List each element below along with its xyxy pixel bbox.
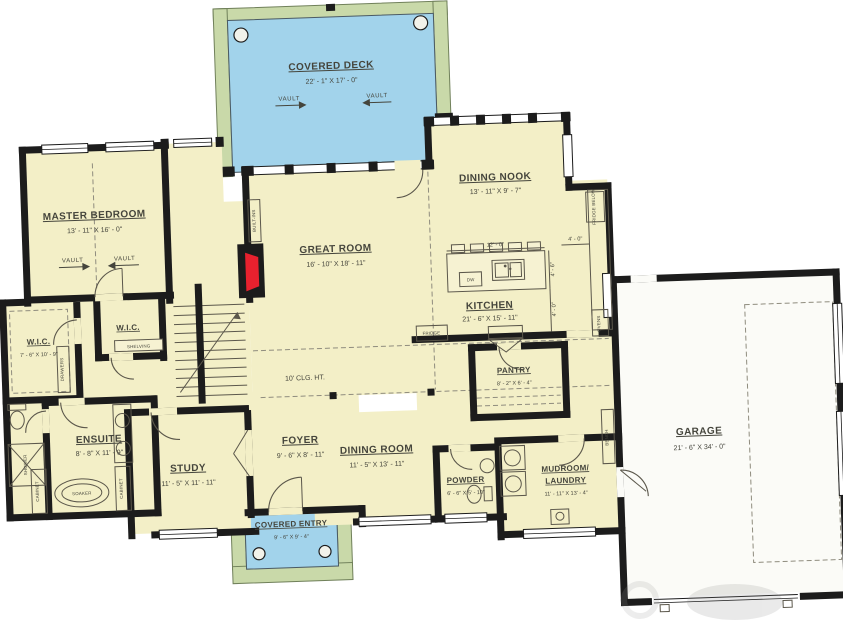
drawers-label: DRAWERS xyxy=(59,358,65,382)
island-width-dim: 4' - 6" xyxy=(550,262,556,276)
floor-plan-page: COVERED DECK 22' - 1" X 17' - 0" VAULT V… xyxy=(0,0,843,632)
built-ins-label: BUILT-INS xyxy=(251,209,257,232)
vault-label: VAULT xyxy=(114,256,136,263)
soaker-label: SOAKER xyxy=(72,491,92,497)
mudroom-label-1: MUDROOM/ xyxy=(541,463,589,474)
shelving-label: SHELVING xyxy=(127,343,151,349)
wic-secondary-label: W.I.C. xyxy=(116,323,140,333)
covered-entry-dims: 9' - 6" X 9' - 4" xyxy=(274,534,309,541)
kitchen-island xyxy=(447,251,546,292)
island-stool xyxy=(451,244,464,252)
entry-post xyxy=(319,545,331,557)
foyer-label: FOYER xyxy=(282,435,319,447)
ceiling-height-note: 10' CLG. HT. xyxy=(285,374,325,382)
ensuite-label: ENSUITE xyxy=(76,433,122,446)
cabinet-label: CABINET xyxy=(118,478,124,499)
dw-label: DW xyxy=(467,277,476,282)
vault-label: VAULT xyxy=(366,93,388,100)
entry-post xyxy=(253,548,265,560)
ovens-label: OVENS xyxy=(596,315,602,332)
pantry-label: PANTRY xyxy=(497,365,531,375)
vault-label: VAULT xyxy=(278,96,300,103)
island-clearance-dim: 4' - 0" xyxy=(551,302,557,316)
rear-hall-floor xyxy=(415,334,619,446)
island-clearance-dim2: 4' - 0" xyxy=(568,236,582,242)
fridge-label: FRIDGE xyxy=(422,330,440,336)
island-length-dim: 12' - 0" xyxy=(487,242,505,249)
island-stool xyxy=(508,242,521,250)
kitchen-label: KITCHEN xyxy=(466,300,514,313)
upper-hall-floor xyxy=(164,142,224,206)
cabinet-label: CABINET xyxy=(34,481,40,502)
mudroom-label-2: LAUNDRY xyxy=(545,475,587,485)
great-room-floor xyxy=(245,163,438,399)
garage-label: GARAGE xyxy=(676,426,723,439)
bench-label: BENCH xyxy=(604,429,610,446)
floor-plan-drawing: COVERED DECK 22' - 1" X 17' - 0" VAULT V… xyxy=(0,0,843,632)
garage-floor xyxy=(614,273,843,601)
pantry-dims: 8' - 2" X 6' - 4" xyxy=(497,380,532,387)
vault-label: VAULT xyxy=(62,258,84,265)
island-stool xyxy=(470,244,483,252)
island-stool xyxy=(527,242,540,250)
deck-post xyxy=(234,28,248,42)
fireplace xyxy=(245,252,260,292)
deck-post xyxy=(413,16,427,30)
wic-primary-label: W.I.C. xyxy=(27,337,51,347)
deck-floor xyxy=(227,13,438,172)
shower-label: SHOWER xyxy=(22,454,28,475)
powder-label: POWDER xyxy=(447,475,485,485)
study-label: STUDY xyxy=(170,463,206,475)
covered-deck xyxy=(211,0,455,177)
wic-primary-floor xyxy=(2,300,79,402)
